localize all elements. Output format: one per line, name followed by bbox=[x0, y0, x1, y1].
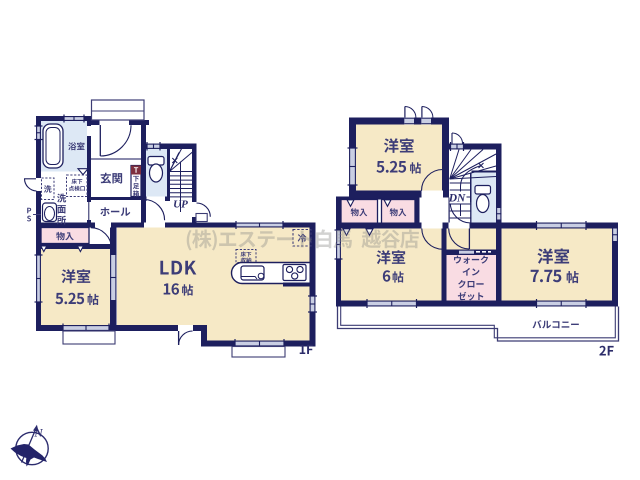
svg-text:N: N bbox=[33, 428, 43, 440]
svg-text:DN: DN bbox=[448, 193, 466, 205]
svg-text:UP: UP bbox=[173, 199, 188, 211]
